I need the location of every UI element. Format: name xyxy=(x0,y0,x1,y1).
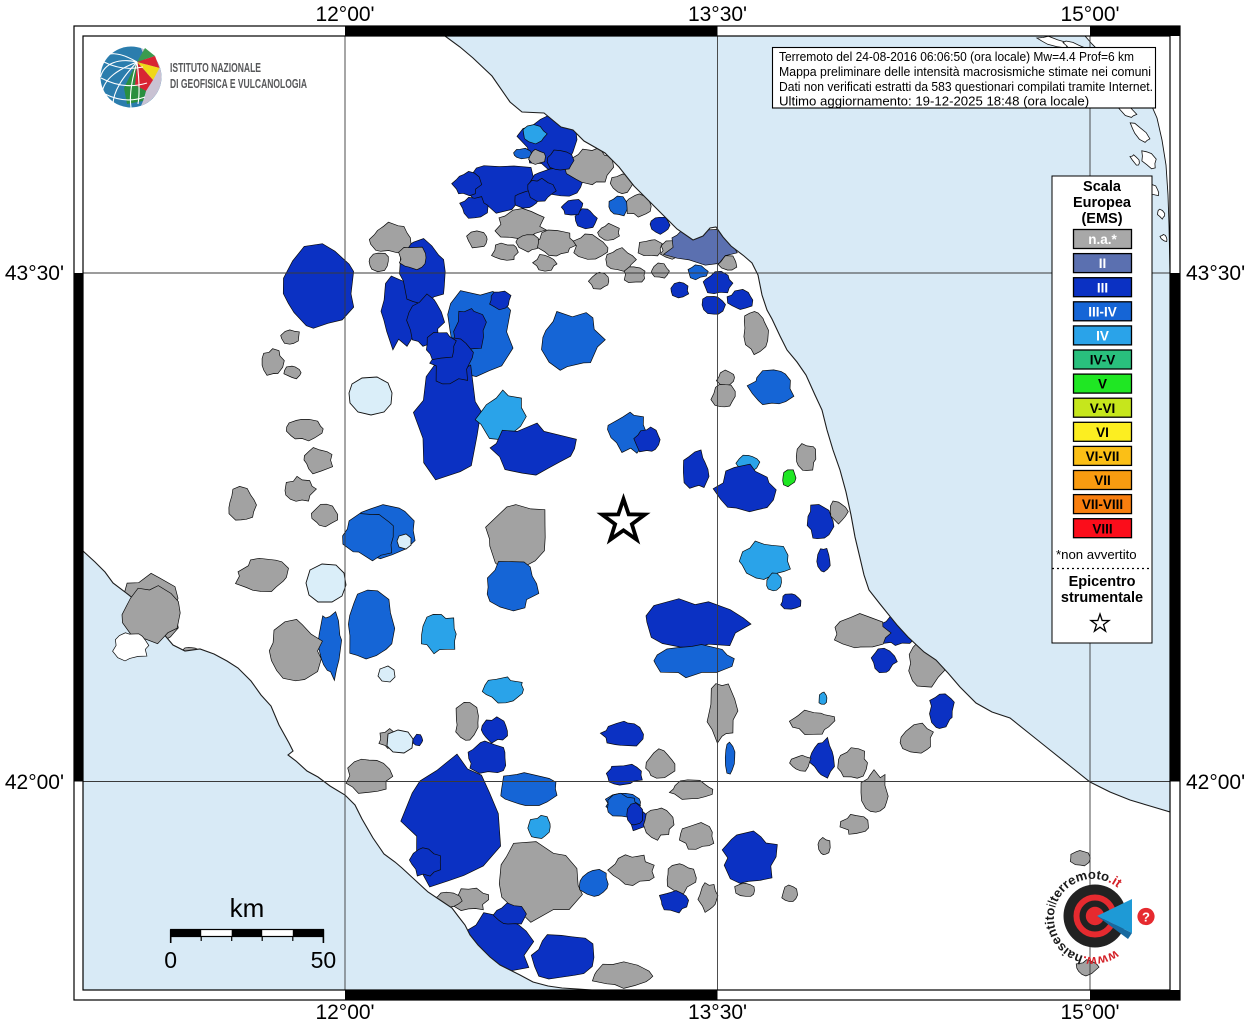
svg-text:42°00': 42°00' xyxy=(1186,771,1245,794)
svg-text:Ultimo aggiornamento: 19-12-20: Ultimo aggiornamento: 19-12-2025 18:48 (… xyxy=(779,94,1089,109)
svg-text:Dati non verificati estratti d: Dati non verificati estratti da 583 ques… xyxy=(779,79,1153,94)
svg-text:VI: VI xyxy=(1096,425,1109,440)
svg-text:V-VI: V-VI xyxy=(1090,401,1116,416)
svg-text:IV-V: IV-V xyxy=(1090,353,1116,368)
svg-text:13°30': 13°30' xyxy=(688,1001,747,1024)
svg-text:II: II xyxy=(1099,256,1107,271)
svg-text:DI GEOFISICA E VULCANOLOGIA: DI GEOFISICA E VULCANOLOGIA xyxy=(170,76,307,91)
svg-text:Terremoto del 24-08-2016 06:06: Terremoto del 24-08-2016 06:06:50 (ora l… xyxy=(779,49,1134,64)
svg-text:ISTITUTO NAZIONALE: ISTITUTO NAZIONALE xyxy=(170,60,261,75)
svg-text:strumentale: strumentale xyxy=(1061,590,1143,606)
svg-text:VII-VIII: VII-VIII xyxy=(1082,497,1123,512)
svg-text:III-IV: III-IV xyxy=(1088,304,1117,319)
svg-text:15°00': 15°00' xyxy=(1060,3,1119,26)
svg-text:Mappa preliminare delle intens: Mappa preliminare delle intensità macros… xyxy=(779,64,1151,79)
svg-text:Europea: Europea xyxy=(1073,195,1132,211)
svg-text:?: ? xyxy=(1142,910,1150,925)
svg-text:VIII: VIII xyxy=(1092,521,1112,536)
svg-text:Scala: Scala xyxy=(1083,179,1122,195)
svg-text:43°30': 43°30' xyxy=(5,262,64,285)
svg-text:13°30': 13°30' xyxy=(688,3,747,26)
svg-text:50: 50 xyxy=(311,947,337,973)
svg-text:15°00': 15°00' xyxy=(1060,1001,1119,1024)
svg-text:12°00': 12°00' xyxy=(315,3,374,26)
svg-text:Epicentro: Epicentro xyxy=(1069,574,1136,590)
svg-text:0: 0 xyxy=(164,947,177,973)
svg-text:VII: VII xyxy=(1094,473,1111,488)
svg-text:VI-VII: VI-VII xyxy=(1086,449,1120,464)
svg-text:43°30': 43°30' xyxy=(1186,262,1245,285)
svg-text:km: km xyxy=(230,893,265,923)
svg-text:*non avvertito: *non avvertito xyxy=(1056,547,1137,562)
svg-text:n.a.*: n.a.* xyxy=(1088,232,1117,247)
svg-text:III: III xyxy=(1097,280,1108,295)
svg-text:42°00': 42°00' xyxy=(5,771,64,794)
svg-text:(EMS): (EMS) xyxy=(1081,211,1122,227)
svg-text:IV: IV xyxy=(1096,329,1109,344)
svg-text:12°00': 12°00' xyxy=(315,1001,374,1024)
svg-text:V: V xyxy=(1098,377,1107,392)
